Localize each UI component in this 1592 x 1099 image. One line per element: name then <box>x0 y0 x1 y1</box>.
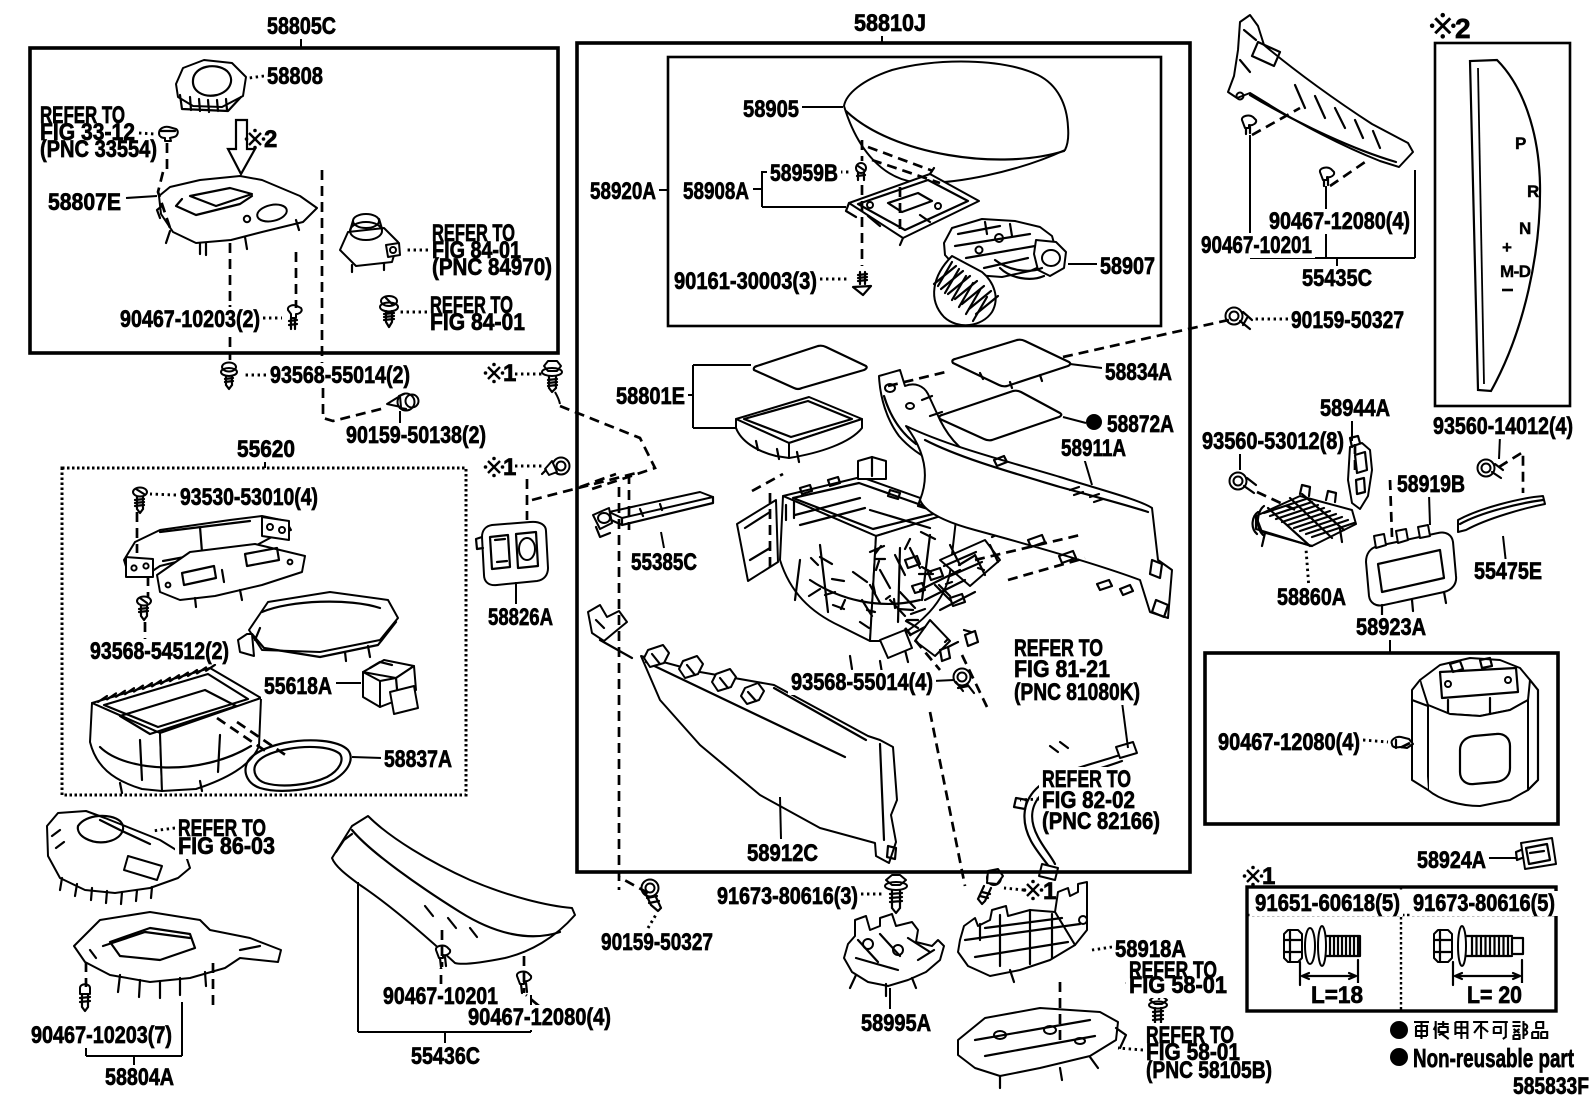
svg-text:L= 20: L= 20 <box>1467 982 1522 1009</box>
svg-text:58826A: 58826A <box>488 604 553 631</box>
svg-text:90467-12080(4): 90467-12080(4) <box>468 1004 611 1031</box>
svg-text:58923A: 58923A <box>1356 614 1426 641</box>
svg-text:90467-10201: 90467-10201 <box>1201 232 1312 259</box>
svg-text:91673-80616(3): 91673-80616(3) <box>717 883 858 910</box>
svg-text:585833F: 585833F <box>1513 1073 1589 1099</box>
svg-text:(PNC 33554): (PNC 33554) <box>40 136 157 163</box>
svg-text:58907: 58907 <box>1100 253 1155 280</box>
svg-text:FIG 84-01: FIG 84-01 <box>430 309 525 336</box>
svg-text:FIG 58-01: FIG 58-01 <box>1129 972 1227 999</box>
svg-text:58919B: 58919B <box>1397 471 1465 498</box>
svg-text:2: 2 <box>264 126 277 153</box>
svg-text:58908A: 58908A <box>683 178 749 205</box>
svg-text:1: 1 <box>1262 863 1275 890</box>
svg-text:58834A: 58834A <box>1105 359 1172 386</box>
svg-text:M-D: M-D <box>1500 262 1531 281</box>
svg-text:90467-12080(4): 90467-12080(4) <box>1269 208 1410 235</box>
svg-text:93560-53012(8): 93560-53012(8) <box>1202 428 1344 455</box>
svg-text:58805C: 58805C <box>267 13 336 40</box>
svg-text:2: 2 <box>1455 13 1471 44</box>
svg-text:55475E: 55475E <box>1474 558 1542 585</box>
svg-text:58808: 58808 <box>267 63 323 90</box>
svg-text:R: R <box>1527 182 1539 201</box>
svg-text:58807E: 58807E <box>48 189 121 216</box>
svg-text:1: 1 <box>503 454 516 481</box>
svg-text:Non-reusable part: Non-reusable part <box>1413 1043 1574 1073</box>
svg-text:1: 1 <box>1043 878 1056 905</box>
svg-text:58995A: 58995A <box>861 1010 931 1037</box>
svg-text:55436C: 55436C <box>411 1043 480 1070</box>
svg-text:93560-14012(4): 93560-14012(4) <box>1433 413 1573 440</box>
svg-text:(PNC 82166): (PNC 82166) <box>1042 808 1160 835</box>
svg-text:55620: 55620 <box>237 436 295 463</box>
svg-text:90159-50327: 90159-50327 <box>1291 307 1404 334</box>
svg-text:58905: 58905 <box>743 96 799 123</box>
svg-text:90159-50138(2): 90159-50138(2) <box>346 422 486 449</box>
svg-text:55435C: 55435C <box>1302 265 1372 292</box>
svg-text:58810J: 58810J <box>854 10 926 37</box>
svg-text:1: 1 <box>503 360 516 387</box>
svg-text:93568-55014(4): 93568-55014(4) <box>791 669 933 696</box>
svg-text:90467-10203(2): 90467-10203(2) <box>120 306 260 333</box>
svg-text:55385C: 55385C <box>631 549 697 576</box>
svg-text:N: N <box>1519 219 1531 238</box>
svg-text:91651-60618(5): 91651-60618(5) <box>1255 890 1400 917</box>
svg-text:58837A: 58837A <box>384 746 452 773</box>
svg-text:93530-53010(4): 93530-53010(4) <box>180 484 318 511</box>
svg-text:+: + <box>1502 238 1512 257</box>
svg-text:58872A: 58872A <box>1107 411 1174 438</box>
svg-text:90161-30003(3): 90161-30003(3) <box>674 268 817 295</box>
svg-text:58912C: 58912C <box>747 840 818 867</box>
svg-text:58959B: 58959B <box>770 160 838 187</box>
svg-text:(PNC 84970): (PNC 84970) <box>432 254 552 281</box>
svg-text:58801E: 58801E <box>616 383 685 410</box>
svg-text:93568-55014(2): 93568-55014(2) <box>270 362 410 389</box>
svg-text:58944A: 58944A <box>1320 395 1390 422</box>
svg-text:91673-80616(5): 91673-80616(5) <box>1413 890 1555 917</box>
svg-text:93568-54512(2): 93568-54512(2) <box>90 638 229 665</box>
svg-text:58920A: 58920A <box>590 178 656 205</box>
svg-text:58911A: 58911A <box>1061 435 1126 462</box>
svg-text:90467-12080(4): 90467-12080(4) <box>1218 729 1360 756</box>
svg-text:58804A: 58804A <box>105 1064 174 1091</box>
svg-text:58860A: 58860A <box>1277 584 1346 611</box>
svg-text:P: P <box>1515 134 1526 153</box>
svg-text:FIG 86-03: FIG 86-03 <box>178 833 275 860</box>
svg-text:90159-50327: 90159-50327 <box>601 929 713 956</box>
svg-text:55618A: 55618A <box>264 673 332 700</box>
svg-text:L=18: L=18 <box>1311 982 1363 1009</box>
svg-text:(PNC 58105B): (PNC 58105B) <box>1146 1057 1272 1084</box>
svg-text:58924A: 58924A <box>1417 847 1486 874</box>
svg-text:90467-10203(7): 90467-10203(7) <box>31 1022 172 1049</box>
svg-text:(PNC 81080K): (PNC 81080K) <box>1014 679 1140 706</box>
